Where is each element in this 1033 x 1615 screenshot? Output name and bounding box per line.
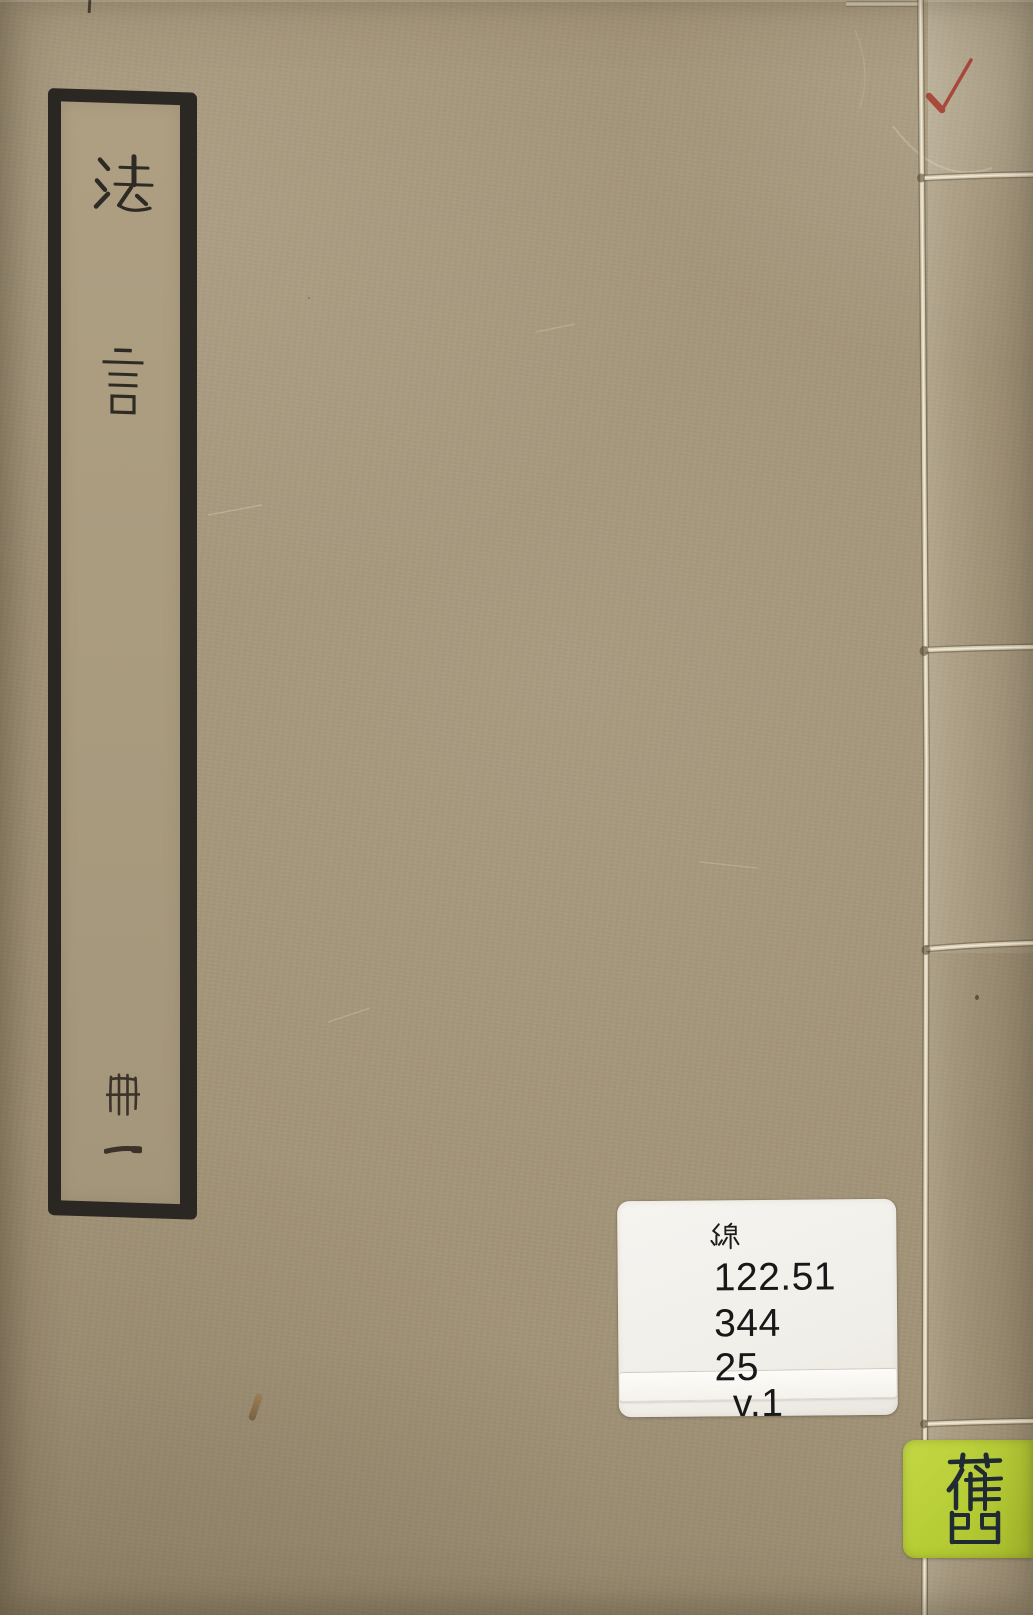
book-cover: 法言 冊一 [0,0,1033,1615]
paper-crease [855,30,865,108]
paper-fiber [700,862,758,868]
binding-thread-horizontal-3 [926,943,1033,949]
paper-speck [975,995,979,1000]
binding-knot [917,174,925,183]
binding-knot [920,1420,928,1429]
hanzi-fa-glyph [92,151,154,219]
hanzi-yi-glyph [104,1142,142,1157]
title-text: 法言 [61,101,62,102]
binding-thread-horizontal-2 [925,647,1033,650]
volume-line: v.1 [733,1384,784,1423]
hanzi-ce-glyph [106,1070,140,1119]
binding-thread-vertical [921,0,927,1615]
cover-top-edge [0,0,1033,2]
condition-tag-text: 舊 [903,1440,904,1441]
binding-thread-horizontal-4 [925,1421,1033,1424]
binding-thread-horizontal-1 [923,175,1033,179]
paper-fiber [208,505,262,515]
library-call-number-label: 線 122.51 344 25 v.1 [617,1199,898,1417]
call-number-line-2: 344 [714,1304,781,1344]
hanzi-jiu-glyph [937,1451,1013,1547]
spine-fold-strip [928,0,1033,1615]
script-char-text: 線 [617,1201,618,1202]
ink-mark-top-edge [88,0,92,13]
binding-knot [920,646,929,656]
paper-fiber [328,1008,370,1022]
binding-knot [922,945,931,955]
title-slip: 法言 冊一 [48,88,197,1220]
paper-fiber [536,324,575,332]
paper-speck [308,297,310,299]
volume-text: 冊一 [61,101,62,102]
paper-crease [893,126,992,172]
hanzi-xian-glyph [709,1222,739,1252]
condition-tag: 舊 [903,1440,1033,1558]
paper-stain [248,1393,263,1422]
hanzi-yan-glyph [101,345,145,416]
red-checkmark [922,52,978,118]
call-number-line-1: 122.51 [714,1257,837,1297]
